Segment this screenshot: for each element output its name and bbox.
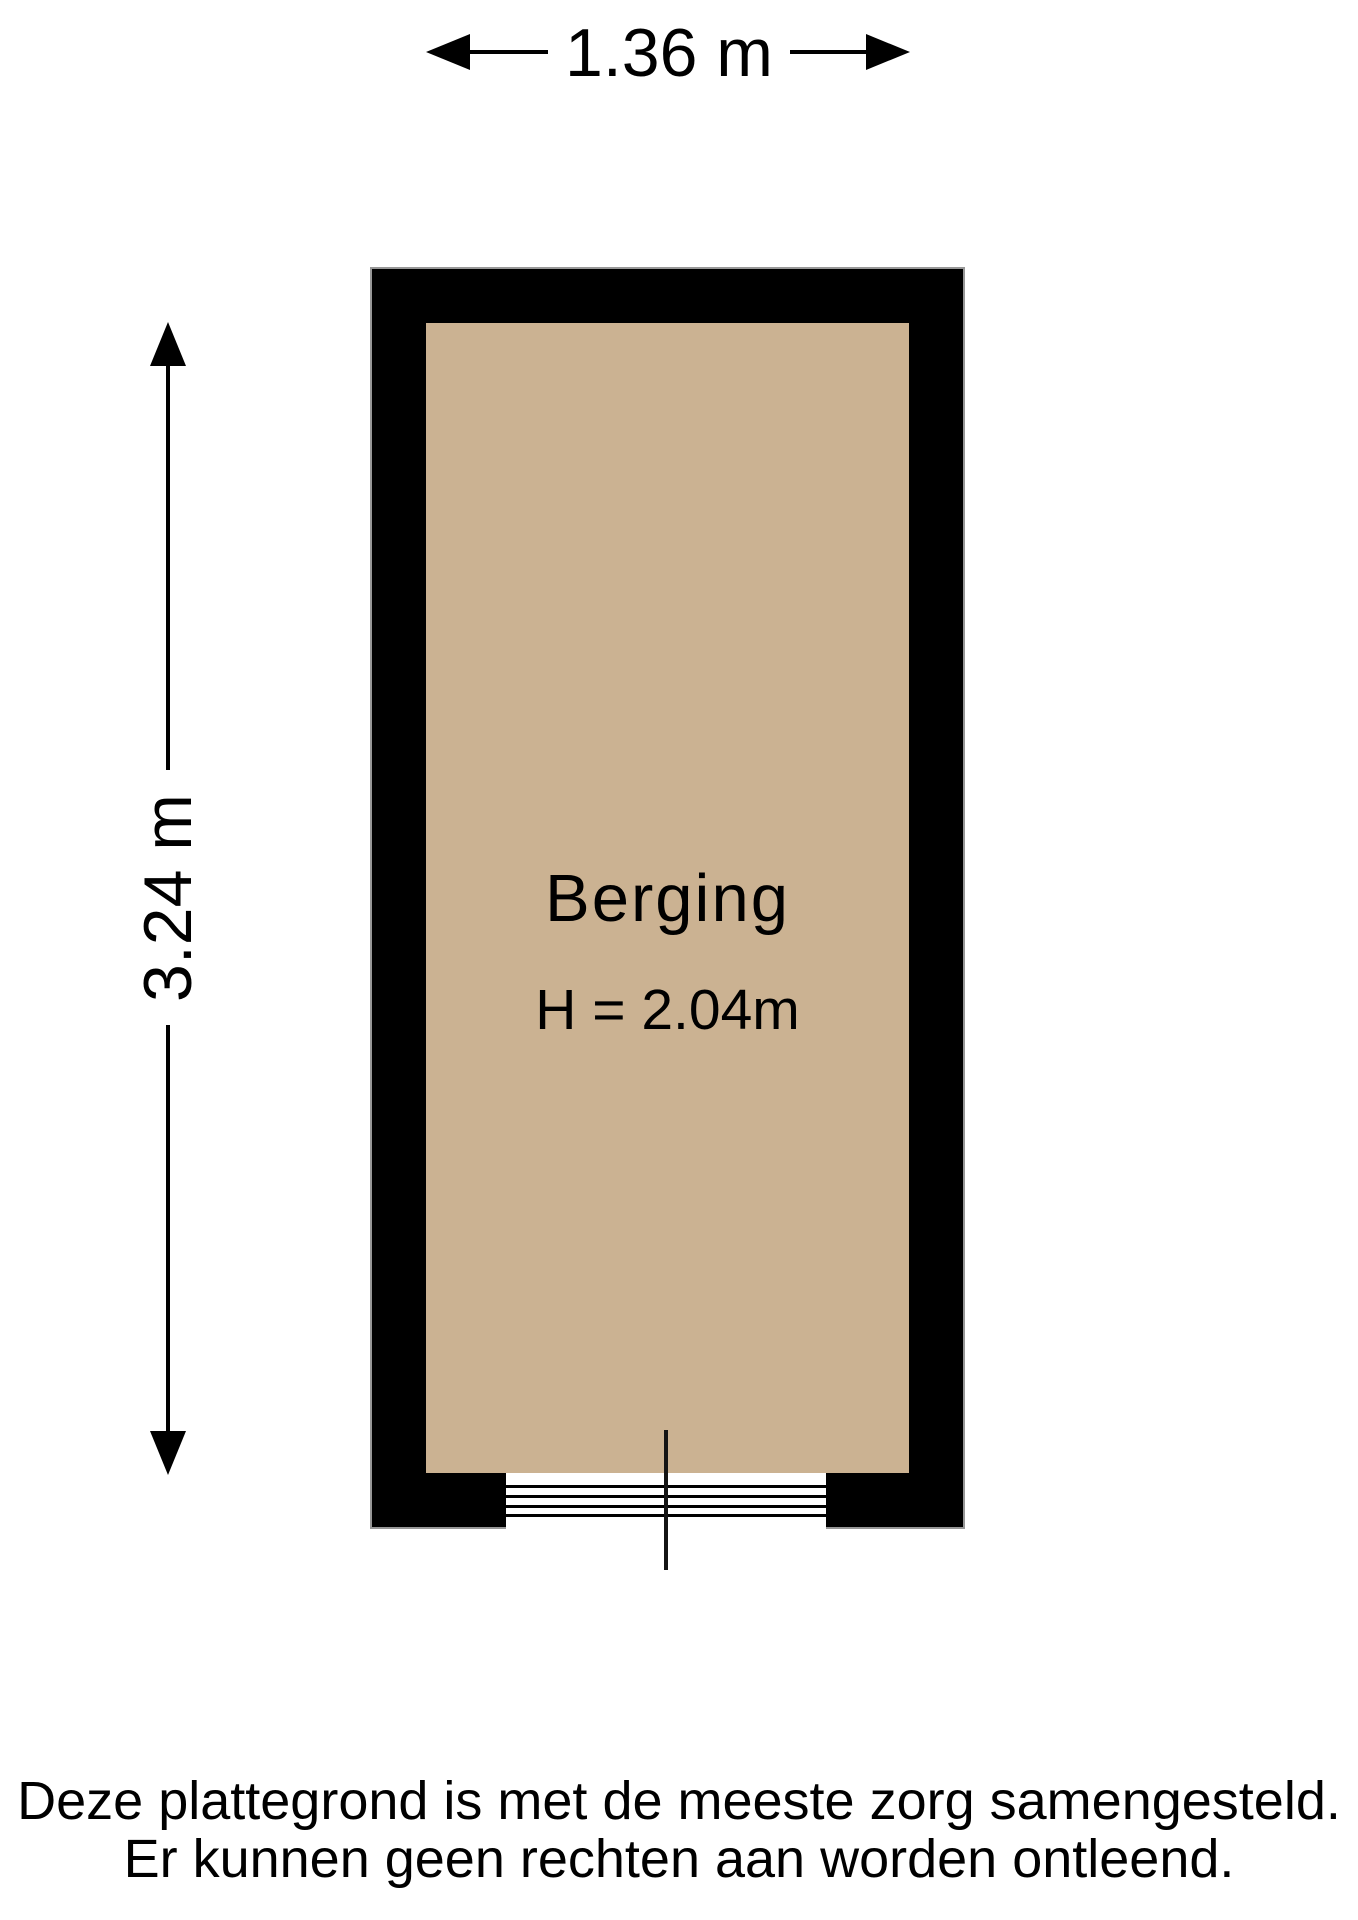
disclaimer-line-2: Er kunnen geen rechten aan worden ontlee…	[0, 1830, 1358, 1888]
disclaimer-line-1: Deze plattegrond is met de meeste zorg s…	[0, 1772, 1358, 1830]
floorplan-canvas: 1.36 m 3.24 m Berging H = 2.04m Deze pla…	[0, 0, 1358, 1920]
door-center-line	[664, 1430, 668, 1570]
arrow-left-icon	[426, 34, 470, 70]
room-name-label: Berging	[426, 864, 909, 934]
dimension-line	[166, 364, 170, 770]
height-dimension-label: 3.24 m	[133, 768, 203, 1028]
dimension-line	[468, 50, 548, 54]
arrow-right-icon	[866, 34, 910, 70]
room-ceiling-height-label: H = 2.04m	[426, 980, 909, 1040]
dimension-line	[166, 1025, 170, 1431]
arrow-up-icon	[150, 322, 186, 366]
disclaimer: Deze plattegrond is met de meeste zorg s…	[0, 1772, 1358, 1888]
arrow-down-icon	[150, 1431, 186, 1475]
width-dimension-label: 1.36 m	[546, 18, 792, 88]
dimension-line	[790, 50, 868, 54]
room-floor: Berging H = 2.04m	[426, 323, 909, 1473]
room-walls: Berging H = 2.04m	[372, 269, 963, 1527]
